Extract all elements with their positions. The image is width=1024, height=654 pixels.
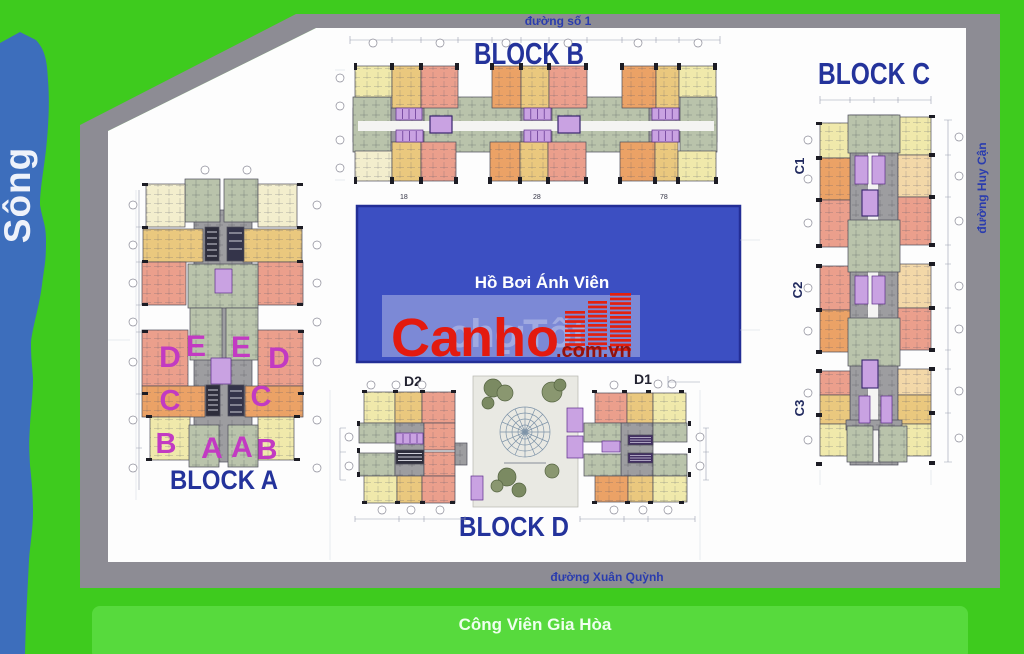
svg-text:D1: D1 — [634, 371, 652, 387]
svg-text:Công Viên Gia Hòa: Công Viên Gia Hòa — [459, 615, 612, 634]
svg-text:E: E — [186, 330, 206, 363]
svg-text:C2: C2 — [790, 282, 805, 299]
svg-text:78: 78 — [660, 194, 668, 201]
svg-text:C: C — [251, 381, 272, 413]
svg-text:A: A — [201, 432, 223, 465]
svg-text:đường Xuân Quỳnh: đường Xuân Quỳnh — [550, 570, 663, 584]
svg-text:C1: C1 — [792, 158, 807, 175]
svg-text:BLOCK D: BLOCK D — [459, 511, 569, 542]
svg-text:Sông: Sông — [0, 147, 38, 243]
svg-text:C3: C3 — [792, 400, 807, 417]
svg-text:28: 28 — [533, 194, 541, 201]
svg-text:Hồ Bơi Ánh Viên: Hồ Bơi Ánh Viên — [475, 273, 610, 292]
svg-text:C: C — [160, 385, 181, 417]
svg-text:.com.vn: .com.vn — [556, 340, 632, 362]
svg-text:đường Huy Cận: đường Huy Cận — [975, 142, 989, 233]
svg-text:B: B — [257, 434, 278, 466]
svg-text:Canho: Canho — [391, 308, 559, 368]
svg-text:B: B — [156, 428, 177, 460]
svg-text:18: 18 — [400, 194, 408, 201]
svg-text:đường số 1: đường số 1 — [525, 14, 592, 28]
svg-text:D: D — [159, 341, 181, 374]
svg-text:BLOCK A: BLOCK A — [170, 465, 278, 495]
svg-text:E: E — [231, 331, 251, 364]
svg-text:A: A — [231, 431, 253, 464]
svg-text:BLOCK C: BLOCK C — [818, 56, 930, 91]
svg-text:D: D — [268, 342, 290, 375]
